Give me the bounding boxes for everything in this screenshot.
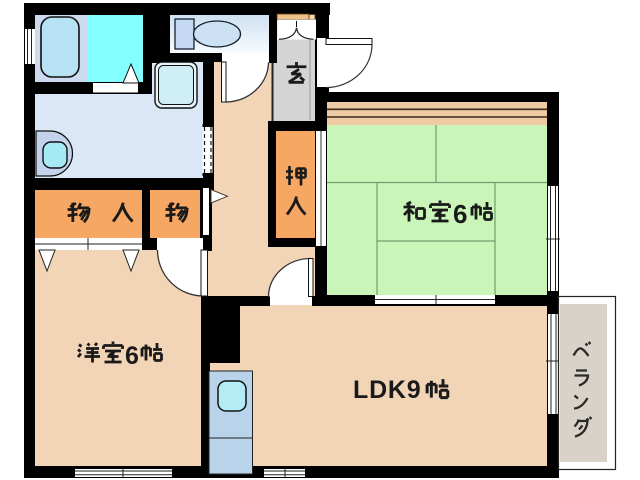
svg-text:6: 6 [125, 342, 139, 370]
svg-text:LDK9: LDK9 [353, 376, 421, 404]
svg-text:6: 6 [453, 199, 467, 229]
